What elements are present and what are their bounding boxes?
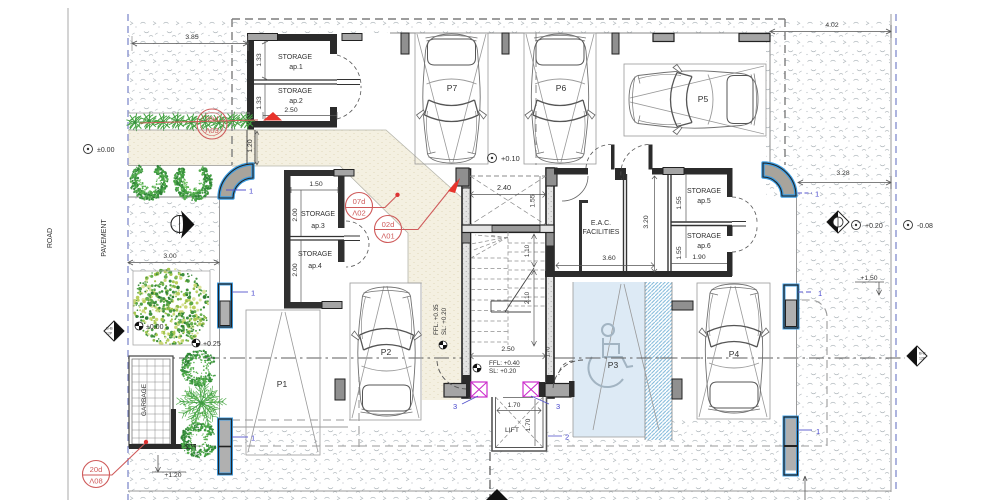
svg-text:3: 3: [453, 402, 457, 411]
svg-text:1.10: 1.10: [524, 244, 531, 257]
svg-text:12P: 12P: [106, 332, 113, 336]
svg-text:02d: 02d: [382, 220, 395, 229]
svg-text:1.20: 1.20: [247, 139, 254, 152]
svg-text:ap.2: ap.2: [289, 98, 303, 105]
svg-text:3: 3: [556, 402, 560, 411]
svg-text:Λ08: Λ08: [89, 477, 103, 486]
svg-text:1.55: 1.55: [530, 194, 537, 207]
svg-text:P2: P2: [381, 347, 392, 357]
svg-text:P5: P5: [698, 94, 709, 104]
svg-text:+1.20: +1.20: [164, 472, 181, 479]
svg-text:ap.3: ap.3: [311, 223, 325, 230]
svg-text:B-B: B-B: [106, 326, 113, 331]
svg-text:PAVEMENT: PAVEMENT: [101, 219, 108, 257]
svg-text:12P: 12P: [919, 357, 926, 361]
svg-text:3.20: 3.20: [643, 215, 650, 228]
svg-text:Λ01: Λ01: [381, 232, 395, 241]
svg-text:STORAGE: STORAGE: [687, 233, 721, 240]
svg-text:STORAGE: STORAGE: [301, 211, 335, 218]
svg-text:P7: P7: [447, 83, 458, 93]
svg-text:+0.25: +0.25: [203, 341, 221, 348]
svg-text:1.70: 1.70: [508, 402, 521, 409]
svg-text:1.55: 1.55: [676, 196, 683, 209]
svg-text:FACILITIES: FACILITIES: [583, 229, 620, 236]
svg-text:P4: P4: [729, 349, 740, 359]
svg-text:STORAGE: STORAGE: [687, 188, 721, 195]
svg-text:P1: P1: [277, 379, 288, 389]
svg-text:20d: 20d: [90, 465, 103, 474]
svg-text:2.40: 2.40: [497, 183, 511, 192]
svg-text:STORAGE: STORAGE: [278, 88, 312, 95]
svg-text:2: 2: [565, 433, 569, 442]
svg-text:2.50: 2.50: [501, 346, 514, 353]
svg-text:FFL: +0.40: FFL: +0.40: [489, 360, 520, 367]
svg-text:1: 1: [818, 289, 822, 298]
svg-text:STORAGE: STORAGE: [278, 54, 312, 61]
svg-text:3.00: 3.00: [163, 253, 176, 260]
svg-text:-0.08: -0.08: [917, 223, 933, 230]
svg-text:09d: 09d: [206, 115, 219, 124]
svg-text:1.70: 1.70: [546, 347, 552, 358]
svg-text:2.50: 2.50: [284, 107, 297, 114]
svg-text:4.02: 4.02: [825, 22, 838, 29]
svg-text:1.55: 1.55: [676, 246, 683, 259]
svg-text:07d: 07d: [353, 197, 366, 206]
svg-text:SL: +0.20: SL: +0.20: [441, 307, 448, 335]
svg-text:ap.1: ap.1: [289, 64, 303, 71]
svg-text:STORAGE: STORAGE: [298, 251, 332, 258]
svg-text:+0.10: +0.10: [501, 154, 520, 163]
svg-text:2.00: 2.00: [292, 208, 299, 221]
svg-text:2.00: 2.00: [292, 263, 299, 276]
svg-text:+1.50: +1.50: [860, 275, 877, 282]
svg-text:1.33: 1.33: [256, 53, 263, 66]
svg-text:SL: +0.20: SL: +0.20: [489, 368, 517, 375]
svg-text:Λ03: Λ03: [205, 126, 219, 135]
svg-text:P6: P6: [556, 83, 567, 93]
svg-text:1: 1: [815, 190, 819, 199]
svg-text:2.10: 2.10: [524, 291, 531, 304]
svg-text:1: 1: [816, 427, 820, 436]
svg-text:P3: P3: [608, 360, 619, 370]
svg-text:GARBAGE: GARBAGE: [141, 383, 148, 416]
svg-text:ap.5: ap.5: [697, 198, 711, 205]
svg-text:1: 1: [251, 434, 255, 443]
svg-text:Λ02: Λ02: [352, 209, 366, 218]
svg-text:3.28: 3.28: [836, 170, 849, 177]
svg-text:3.85: 3.85: [185, 34, 198, 41]
svg-text:3.60: 3.60: [602, 255, 615, 262]
svg-text:ap.6: ap.6: [697, 243, 711, 250]
svg-text:1.90: 1.90: [692, 254, 705, 261]
svg-text:+0.20: +0.20: [865, 223, 883, 230]
svg-text:FFL: +0.35: FFL: +0.35: [433, 304, 440, 335]
svg-text:1.33: 1.33: [256, 96, 263, 109]
svg-text:±0.00: ±0.00: [97, 147, 115, 154]
svg-text:ap.4: ap.4: [308, 263, 322, 270]
svg-text:1: 1: [249, 187, 253, 196]
svg-text:ROAD: ROAD: [47, 228, 54, 248]
svg-text:LIFT: LIFT: [505, 427, 519, 434]
svg-text:1.70: 1.70: [525, 418, 532, 431]
svg-text:1: 1: [251, 289, 255, 298]
svg-text:E.A.C.: E.A.C.: [591, 220, 611, 227]
svg-text:±0.00: ±0.00: [146, 324, 164, 331]
svg-text:1.50: 1.50: [309, 181, 322, 188]
svg-text:B-B: B-B: [919, 351, 926, 356]
